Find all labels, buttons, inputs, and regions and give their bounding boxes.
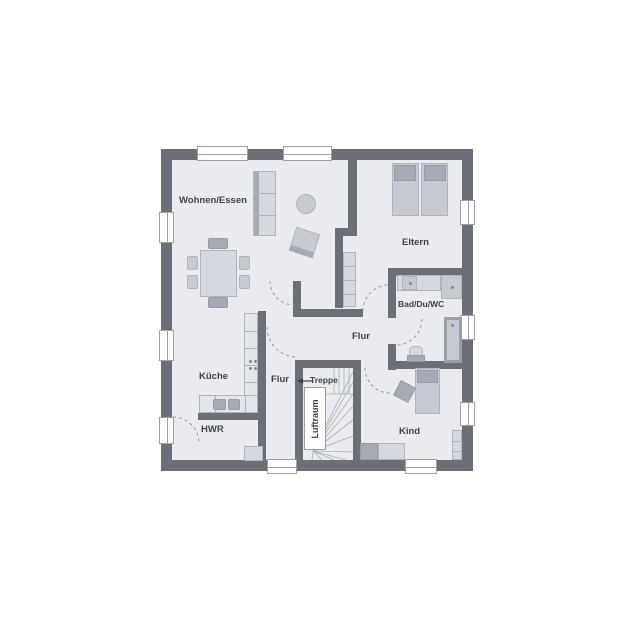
room-label-kueche: Küche (199, 372, 228, 382)
room-label-kind: Kind (399, 427, 420, 437)
room-label-wohnen-essen: Wohnen/Essen (179, 196, 247, 206)
luftraum-void-box: Luftraum (304, 387, 326, 450)
room-label-bad: Bad/Du/WC (398, 300, 444, 309)
door-arc-kind (365, 368, 390, 393)
room-label-flur-small: Flur (271, 375, 289, 385)
room-label-flur-main: Flur (352, 332, 370, 342)
door-arc-bad (396, 319, 422, 345)
luftraum-label: Luftraum (310, 399, 320, 438)
room-label-eltern: Eltern (402, 238, 429, 248)
floor-plan-canvas: Luftraum Wohnen/Essen Eltern Bad/Du/WC F… (0, 0, 636, 636)
door-arc-hwr (173, 417, 199, 443)
door-arc-wohnen-flur (270, 281, 294, 305)
door-arc-flur-small (267, 327, 297, 357)
room-label-hwr: HWR (201, 425, 224, 435)
room-label-treppe: Treppe (310, 376, 338, 385)
plan-linework (0, 0, 636, 636)
door-arc-eltern (363, 285, 389, 311)
